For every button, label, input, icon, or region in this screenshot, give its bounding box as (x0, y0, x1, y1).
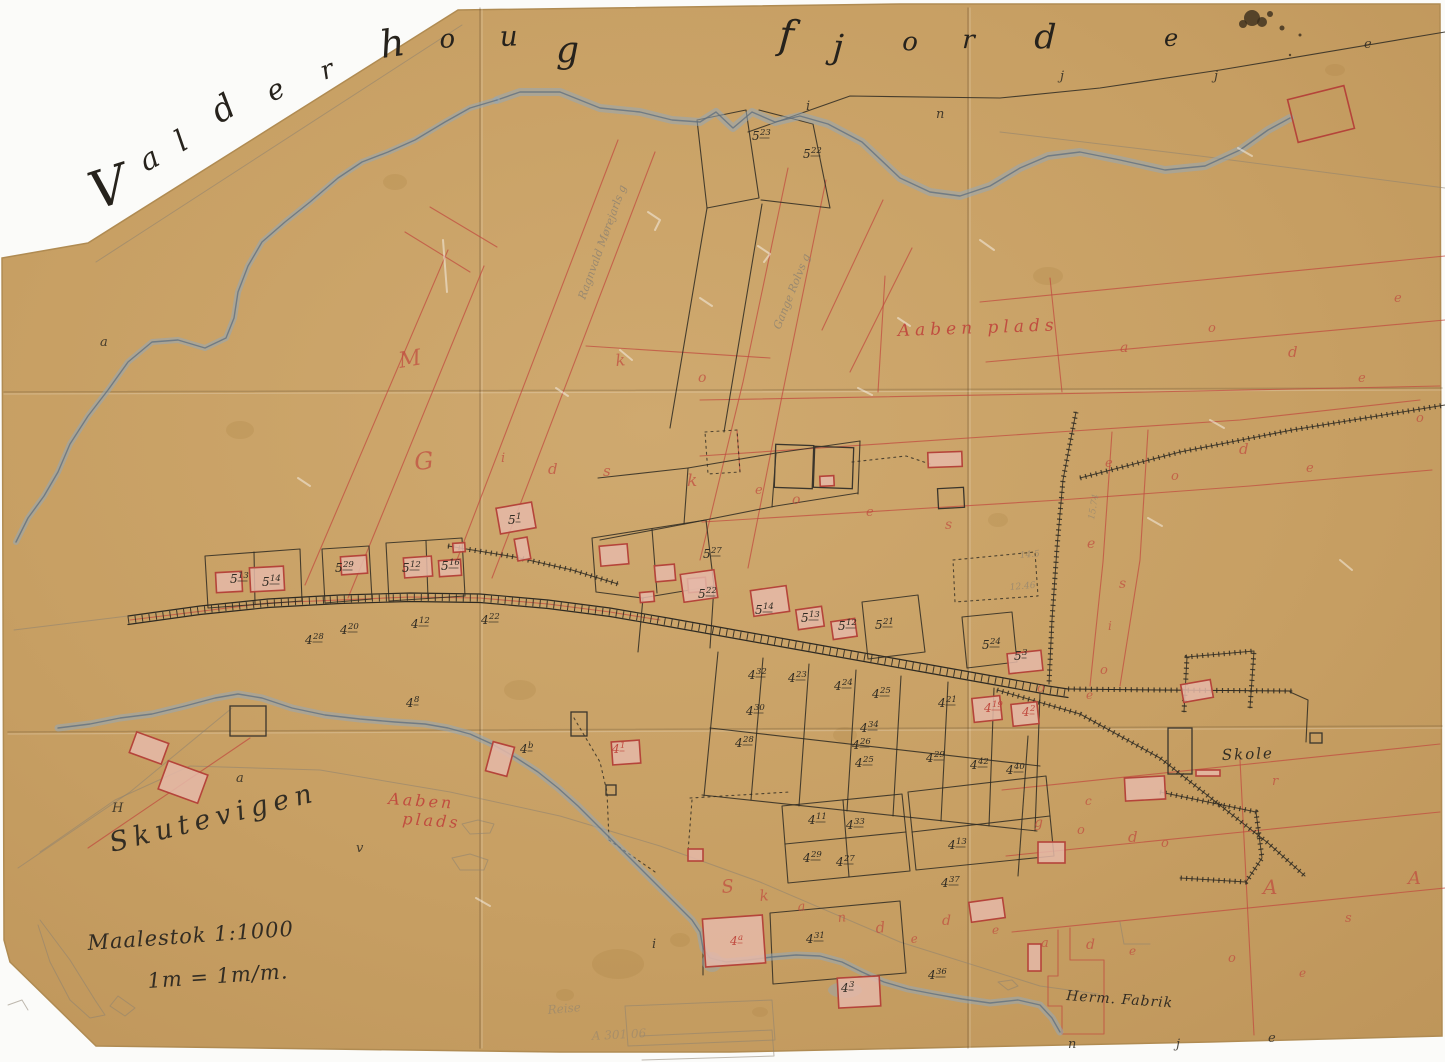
plot-number-sup: 22 (705, 586, 717, 596)
boundary-point-letter: i (806, 99, 810, 114)
plot-number-main: 5 (801, 611, 809, 625)
plot-number-sup: 19 (992, 700, 1003, 710)
red-street-letter: d (548, 460, 558, 478)
plot-number-main: 4 (807, 813, 816, 827)
plot-number-main: 4 (854, 756, 863, 770)
plot-number-main: 4 (410, 617, 419, 631)
plot-number-sup: 37 (949, 875, 960, 885)
red-street-letter: e (1358, 371, 1366, 386)
red-street-letter: e (1306, 461, 1314, 476)
plot-number-main: 4 (734, 736, 743, 750)
building (514, 537, 531, 561)
red-street-letter: s (945, 517, 952, 533)
fjord-title-letter: d (1034, 17, 1057, 58)
plot-number-sup: 13 (809, 610, 820, 620)
red-street-letter: i (501, 451, 505, 466)
plot-number-main: 4 (835, 855, 844, 869)
plot-number-sup: 27 (710, 546, 722, 556)
boundary-point-letter: a (100, 335, 108, 350)
red-street-letter: e (755, 483, 763, 498)
plot-number-main: 5 (755, 603, 763, 617)
fjord-title-letter: o (902, 27, 919, 58)
fjord-title-letter: d (204, 86, 244, 131)
fjord-title-letter: h (377, 20, 407, 67)
plot-number-main: 5 (230, 572, 238, 586)
plot-number-sup: 23 (795, 670, 807, 680)
plot-number-sup: 8 (414, 695, 420, 705)
plot-number-sup: 23 (759, 128, 771, 138)
plot-number-main: 4 (802, 851, 811, 865)
plot-number-main: 4 (304, 633, 313, 647)
red-street-letter: o (1171, 469, 1179, 484)
paper-stain (592, 949, 644, 979)
ink-blot (1239, 20, 1247, 28)
plot-number-sup: 28 (312, 632, 324, 642)
red-street-letter: e (1105, 456, 1113, 471)
plot-number-sup: 16 (449, 558, 460, 568)
red-street-letter: o (1161, 836, 1169, 851)
plot-number-sup: 42 (977, 757, 989, 767)
ink-blot (1289, 54, 1291, 56)
plot-number-sup: 32 (756, 667, 767, 677)
red-street-letter: G (413, 446, 435, 476)
plot-number-sup: 25 (879, 686, 891, 696)
plot-number-main: 4 (983, 701, 992, 715)
scanned-map-page: Valderhoug fjord — haandtegnet kart, Sku… (0, 0, 1445, 1062)
red-street-letter: a (1120, 340, 1128, 356)
red-street-letter: a (1041, 936, 1049, 951)
plot-number-main: 5 (803, 147, 811, 161)
boundary-point-letter: i (652, 937, 656, 952)
fjord-title-letter: V (81, 152, 139, 222)
red-street-letter: i (1108, 619, 1112, 633)
plot-number-sup: 36 (936, 967, 947, 977)
plot-number-sup: 12 (410, 560, 421, 570)
plot-number-sup: 1 (620, 741, 625, 751)
red-street-letter: a (797, 899, 806, 915)
building (1038, 842, 1065, 863)
plot-number-sup: 33 (854, 817, 865, 827)
plot-number-main: 4 (787, 671, 796, 685)
red-street-letter: d (875, 918, 886, 937)
plot-number-sup: 21 (945, 695, 957, 705)
boundary-point-letter: n (936, 107, 944, 122)
plot-number-main: 4 (611, 742, 620, 756)
plot-number-main: 4 (745, 704, 754, 718)
plot-number-main: 4 (1021, 705, 1030, 719)
red-street-letter: d (1086, 937, 1095, 953)
plot-number-main: 4 (940, 876, 949, 890)
building (969, 898, 1005, 923)
fjord-title-letter: a (133, 140, 165, 179)
red-street-letter: g (1034, 815, 1043, 831)
paper-stain (383, 174, 407, 190)
building (1028, 944, 1041, 971)
boundary-point-letter: a (236, 771, 244, 786)
red-street-letter: n (837, 910, 847, 926)
red-street-letter: A (1261, 875, 1277, 899)
plot-number-main: 5 (698, 587, 706, 601)
red-street-letter: o (1208, 321, 1216, 336)
plot-number-sup: 14 (763, 602, 774, 612)
plot-number-main: 4 (947, 838, 956, 852)
red-street-letter: d (942, 913, 951, 929)
building (654, 564, 675, 582)
building (1196, 770, 1220, 776)
red-street-letter: k (759, 886, 770, 905)
paper-stain (752, 1007, 768, 1017)
red-street-letter: e (1299, 966, 1306, 980)
plot-number-sup: 31 (814, 931, 825, 941)
map-svg: 5235225135145295125165152752251451351252… (0, 0, 1445, 1062)
plot-number-main: 5 (335, 561, 343, 575)
plot-number-sup: 1 (516, 512, 521, 522)
fjord-title-letter: u (499, 19, 518, 53)
plot-number-main: 4 (845, 818, 854, 832)
plot-number-sup: 12 (846, 618, 857, 628)
red-street-letter: r (1272, 774, 1279, 789)
building (928, 451, 963, 467)
plot-number-sup: 29 (933, 750, 945, 760)
red-street-letter: d (1288, 343, 1298, 361)
plot-number-sup: 14 (270, 574, 281, 584)
pencil-note-1: Reise (546, 1000, 581, 1017)
plot-number-sup: a (738, 933, 743, 943)
building (1124, 776, 1165, 801)
red-street-letter: e (1087, 536, 1095, 552)
red-street-letter: s (1345, 911, 1352, 926)
plot-number-main: 4 (729, 934, 738, 948)
plot-number-sup: 24 (989, 637, 1001, 647)
plot-number-sup: 13 (238, 571, 249, 581)
fjord-title-letter: g (556, 30, 579, 71)
red-street-letter: o (1037, 681, 1045, 696)
pencil-note-2: A 301 06 (590, 1026, 646, 1043)
plot-number-main: 4 (927, 968, 936, 982)
plot-number-main: 4 (480, 613, 489, 627)
fjord-title-letter: o (438, 24, 456, 55)
pencil-line (8, 1000, 28, 1010)
red-street-letter: o (1228, 951, 1236, 966)
plot-number-main: 5 (1014, 649, 1022, 663)
paper-stain (1325, 64, 1345, 76)
red-street-letter: A (1406, 868, 1421, 889)
plot-number-main: 4 (925, 751, 934, 765)
fjord-title-letter: e (1164, 24, 1178, 52)
red-street-letter: o (698, 370, 706, 386)
boundary-point-letter: H (111, 801, 124, 816)
plot-number-sup: 3 (849, 980, 854, 990)
building (453, 543, 466, 553)
red-street-letter: e (1129, 944, 1136, 958)
plot-number-sup: 22 (488, 612, 500, 622)
plot-number-sup: 12 (419, 616, 430, 626)
plot-number-main: 5 (875, 618, 883, 632)
plot-number-main: 4 (805, 932, 814, 946)
fjord-title-letter: r (316, 54, 339, 87)
plot-number-main: 5 (838, 619, 846, 633)
plot-number-main: 4 (840, 981, 849, 995)
plot-number-sup: 26 (859, 737, 871, 747)
plot-number-main: 5 (703, 547, 711, 561)
boundary-point-letter: v (356, 841, 364, 856)
plot-number-sup: 24 (841, 678, 853, 688)
paper-stain (988, 513, 1008, 527)
fjord-title-letter: e (261, 71, 290, 108)
boundary-point-letter: n (1068, 1037, 1076, 1052)
paper-stain (556, 989, 574, 1001)
ink-blot (1299, 34, 1302, 37)
plot-number-sup: 2 (1029, 704, 1035, 714)
plot-number-sup: 22 (810, 146, 822, 156)
red-street-letter: c (1085, 794, 1092, 808)
red-street-letter: o (1100, 663, 1108, 678)
plot-number-main: 5 (752, 129, 760, 143)
paper-stain (226, 421, 254, 439)
skole-label: Skole (1222, 744, 1275, 764)
building (599, 544, 629, 566)
plot-number-sup: 13 (956, 837, 967, 847)
plot-number-sup: 34 (868, 720, 879, 730)
red-street-letter: d (1239, 440, 1249, 458)
red-street-letter: o (1416, 411, 1424, 426)
pencil-measure-1: 14.5 (1019, 549, 1040, 561)
red-street-letter: s (1119, 576, 1126, 592)
red-street-letter: e (1394, 291, 1402, 306)
plot-number-main: 4 (833, 679, 842, 693)
ink-blot (1280, 26, 1285, 31)
plot-number-sup: 11 (816, 812, 827, 822)
plot-number-sup: 29 (810, 850, 822, 860)
plot-number-main: 4 (871, 687, 880, 701)
plot-number-main: 4 (969, 758, 978, 772)
aaben-plads-south-label-2: plads (402, 809, 462, 832)
plot-number-main: 4 (405, 696, 414, 710)
red-street-letter: o (792, 492, 800, 508)
plot-number-main: 4 (339, 623, 348, 637)
plot-number-main: 4 (859, 721, 868, 735)
red-street-letter: k (687, 471, 697, 491)
red-street-letter: e (866, 505, 874, 520)
plot-number-sup: b (528, 741, 533, 751)
plot-number-main: 4 (747, 668, 756, 682)
plot-number-main: 4 (851, 738, 860, 752)
plot-number-main: 4 (1005, 763, 1014, 777)
ink-blot (1257, 17, 1267, 27)
red-street-letter: M (396, 345, 424, 374)
plot-number-main: 5 (441, 559, 449, 573)
red-street-letter: e (992, 923, 999, 937)
plot-number-main: 5 (262, 575, 270, 589)
fjord-title-letter: l (169, 124, 195, 159)
red-street-letter: e (910, 931, 918, 946)
plot-number-sup: 21 (882, 617, 894, 627)
red-street-letter: s (603, 462, 611, 480)
plot-number-main: 4 (937, 696, 946, 710)
boundary-point-letter: e (1268, 1031, 1276, 1046)
building (820, 476, 835, 487)
plot-number-sup: 20 (347, 622, 359, 632)
building (688, 849, 703, 861)
building (640, 591, 655, 602)
red-street-letter: o (1077, 823, 1085, 838)
plot-number-sup: 30 (754, 703, 765, 713)
plot-number-sup: 28 (742, 735, 754, 745)
plot-number-main: 4 (519, 742, 528, 756)
plot-number-main: 5 (402, 561, 410, 575)
red-street-letter: d (1128, 828, 1138, 846)
plot-number-sup: 3 (1022, 648, 1027, 658)
red-street-letter: e (1086, 688, 1093, 702)
paper-stain (670, 933, 690, 947)
boundary-point-letter: e (1364, 37, 1372, 52)
ink-blot (1267, 11, 1273, 17)
plot-number-main: 5 (508, 513, 516, 527)
paper-stain (504, 680, 536, 700)
red-street-letter: S (721, 876, 735, 898)
plot-number-main: 5 (982, 638, 990, 652)
plot-number-sup: 29 (342, 560, 354, 570)
plot-number-sup: 40 (1013, 762, 1025, 772)
plot-number-sup: 27 (843, 854, 855, 864)
plot-number-sup: 25 (862, 755, 874, 765)
paper-stain (1033, 267, 1063, 285)
